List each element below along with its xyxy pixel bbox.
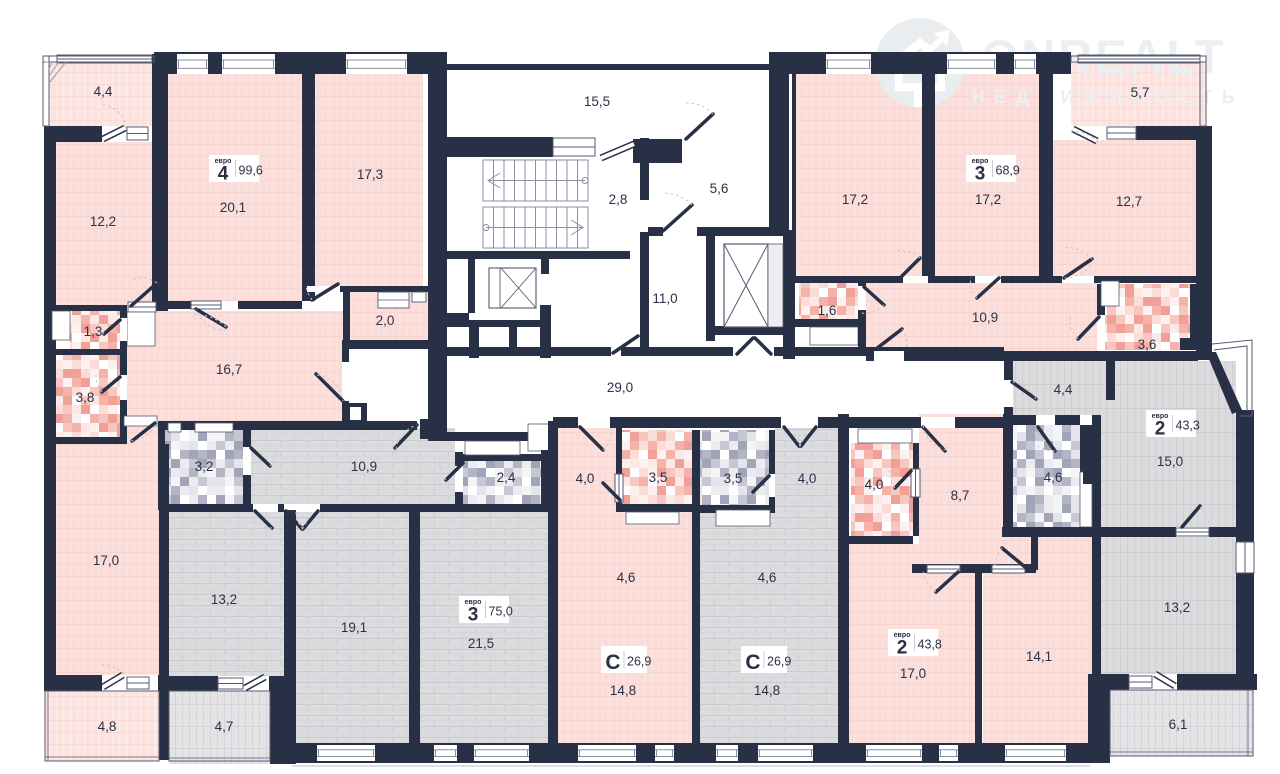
svg-text:1,3: 1,3 xyxy=(84,324,103,339)
svg-text:14,8: 14,8 xyxy=(754,683,780,698)
svg-text:3,5: 3,5 xyxy=(649,470,668,485)
svg-text:13,2: 13,2 xyxy=(211,592,237,607)
svg-text:68,9: 68,9 xyxy=(996,164,1020,178)
svg-text:2,0: 2,0 xyxy=(376,313,395,328)
svg-text:3,6: 3,6 xyxy=(1138,337,1157,352)
svg-text:С: С xyxy=(605,651,620,674)
svg-text:15,5: 15,5 xyxy=(584,94,610,109)
svg-text:4,6: 4,6 xyxy=(1044,470,1063,485)
svg-text:5,7: 5,7 xyxy=(1131,85,1150,100)
svg-text:3: 3 xyxy=(975,164,986,185)
svg-text:75,0: 75,0 xyxy=(489,605,513,619)
svg-text:10,9: 10,9 xyxy=(972,310,998,325)
svg-text:3,5: 3,5 xyxy=(724,471,743,486)
svg-text:С: С xyxy=(745,651,760,674)
svg-text:14,8: 14,8 xyxy=(610,683,636,698)
svg-text:3: 3 xyxy=(468,605,479,626)
svg-text:17,2: 17,2 xyxy=(975,192,1001,207)
svg-text:4: 4 xyxy=(218,164,229,185)
svg-text:43,3: 43,3 xyxy=(1176,419,1200,433)
svg-text:4,4: 4,4 xyxy=(1054,382,1073,397)
svg-text:2,8: 2,8 xyxy=(609,192,628,207)
svg-text:НЕДВИЖИМОСТЬ: НЕДВИЖИМОСТЬ xyxy=(972,87,1244,107)
svg-text:10,9: 10,9 xyxy=(351,459,377,474)
svg-text:19,1: 19,1 xyxy=(341,620,367,635)
svg-text:99,6: 99,6 xyxy=(239,164,263,178)
svg-text:4,7: 4,7 xyxy=(215,719,234,734)
svg-text:16,7: 16,7 xyxy=(216,362,242,377)
svg-text:17,0: 17,0 xyxy=(93,553,119,568)
svg-text:20,1: 20,1 xyxy=(220,200,246,215)
svg-text:5,6: 5,6 xyxy=(710,181,729,196)
svg-text:14,1: 14,1 xyxy=(1026,649,1052,664)
svg-text:2: 2 xyxy=(897,638,908,659)
svg-text:3,8: 3,8 xyxy=(76,390,95,405)
svg-text:4,6: 4,6 xyxy=(758,570,777,585)
svg-text:21,5: 21,5 xyxy=(468,636,494,651)
svg-text:4,0: 4,0 xyxy=(798,471,817,486)
svg-text:17,0: 17,0 xyxy=(900,666,926,681)
svg-text:29,0: 29,0 xyxy=(607,380,633,395)
svg-text:17,3: 17,3 xyxy=(357,167,383,182)
svg-text:3,2: 3,2 xyxy=(195,459,214,474)
svg-text:17,2: 17,2 xyxy=(842,192,868,207)
svg-text:4,8: 4,8 xyxy=(98,719,117,734)
svg-text:4,4: 4,4 xyxy=(94,84,113,99)
svg-text:2,4: 2,4 xyxy=(497,470,516,485)
svg-text:12,7: 12,7 xyxy=(1116,194,1142,209)
svg-text:4,6: 4,6 xyxy=(617,570,636,585)
svg-text:6,1: 6,1 xyxy=(1169,717,1188,732)
svg-text:2: 2 xyxy=(1155,419,1166,440)
svg-text:15,0: 15,0 xyxy=(1157,454,1183,469)
svg-text:12,2: 12,2 xyxy=(90,214,116,229)
svg-text:11,0: 11,0 xyxy=(652,291,677,306)
svg-text:4,0: 4,0 xyxy=(865,477,884,492)
svg-text:1,6: 1,6 xyxy=(818,303,837,318)
svg-text:4,0: 4,0 xyxy=(576,471,595,486)
svg-text:26,9: 26,9 xyxy=(627,655,651,669)
svg-text:26,9: 26,9 xyxy=(767,655,791,669)
svg-text:13,2: 13,2 xyxy=(1164,600,1190,615)
svg-text:8,7: 8,7 xyxy=(951,488,970,503)
svg-text:43,8: 43,8 xyxy=(918,638,942,652)
